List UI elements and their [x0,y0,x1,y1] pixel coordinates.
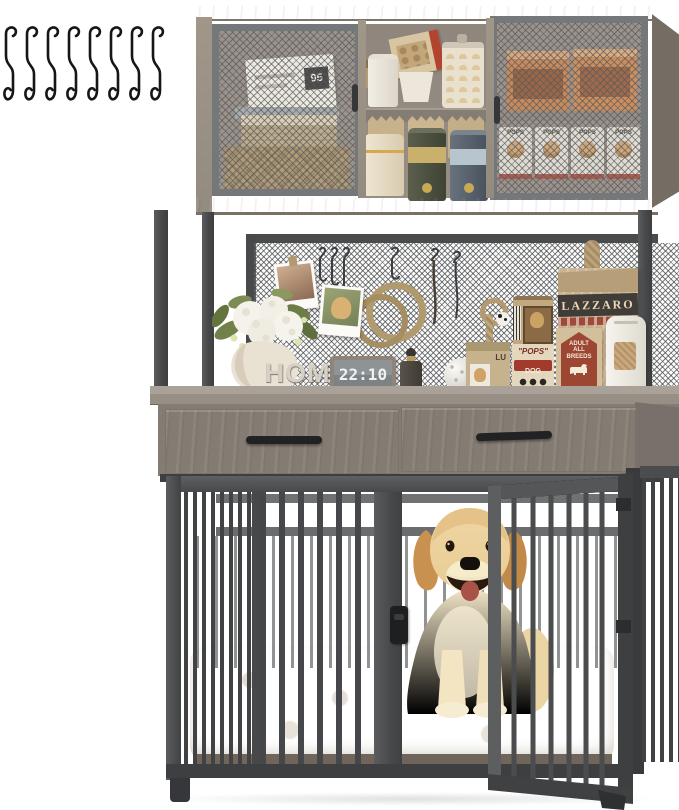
rope-wreath [354,282,424,342]
floor-shadow [158,792,663,806]
dog-can-top [513,296,553,348]
breeds-badge: ADULT ALL BREEDS [561,332,597,386]
s-hook-icon [23,24,39,112]
pegboard-hook [388,246,402,284]
dog-silhouette-icon [568,362,590,376]
s-hook-icon [2,24,18,112]
food-dispenser [606,316,646,394]
s-hooks-set [2,24,170,112]
white-canister [368,54,398,107]
right-door-mesh [497,23,641,193]
door-hinge [616,620,631,633]
badge-line-2: ALL [561,347,597,354]
left-door-mesh [219,31,355,189]
s-hook-icon [149,24,165,112]
breeds-food-bag: ADULT ALL BREEDS [556,328,602,392]
lazzaro-brand-text: LAZZARO [561,297,635,313]
polaroid-dog-photo [318,284,364,337]
crate-front-bars [260,492,378,766]
badge-line-3: BREEDS [561,354,597,361]
blue-tin [450,130,488,201]
crate-open-door[interactable] [470,458,679,810]
frame-leg-left [154,210,168,388]
drawer-left-handle[interactable] [246,436,322,444]
pops-can-stack: "POPS" DOG FOOD [512,296,554,392]
cream-tin [364,134,404,196]
open-shelf-section [362,24,490,198]
right-mesh-cabinet: POPS POPS POPS POPS [490,16,648,200]
s-hook-icon [65,24,81,112]
white-pot [398,72,434,102]
small-bag-text: LU [495,353,506,362]
s-hook-icon [128,24,144,112]
crate-left-post [166,476,181,780]
right-door-handle[interactable] [494,96,500,124]
dark-tin [408,128,446,201]
hutch-side-panel [652,8,679,212]
product-image: 95 [0,0,679,810]
door-hinge [616,498,631,511]
dog-eye-left [446,541,455,552]
hutch-divider [486,18,494,198]
hutch-left-frame [196,17,212,212]
s-hook-icon [86,24,102,112]
hutch-divider [358,20,366,198]
crate-front-bars-dense [184,492,254,766]
dog-can-bottom: "POPS" DOG FOOD [512,344,554,390]
clock-time: 22:10 [339,365,387,384]
small-food-bag: LU [466,342,510,392]
hutch-bottom-board [196,198,658,215]
door-front-stile [488,485,501,780]
snack-glass-jar [442,42,484,108]
left-mesh-cabinet: 95 [212,24,362,196]
dalmatian-charm [496,312,510,326]
tabletop [150,386,679,405]
crate-front-post [252,490,260,768]
s-hook-icon [44,24,60,112]
hanging-leashes [424,248,466,332]
pops-brand: "POPS" [512,347,554,356]
s-hook-icon [107,24,123,112]
